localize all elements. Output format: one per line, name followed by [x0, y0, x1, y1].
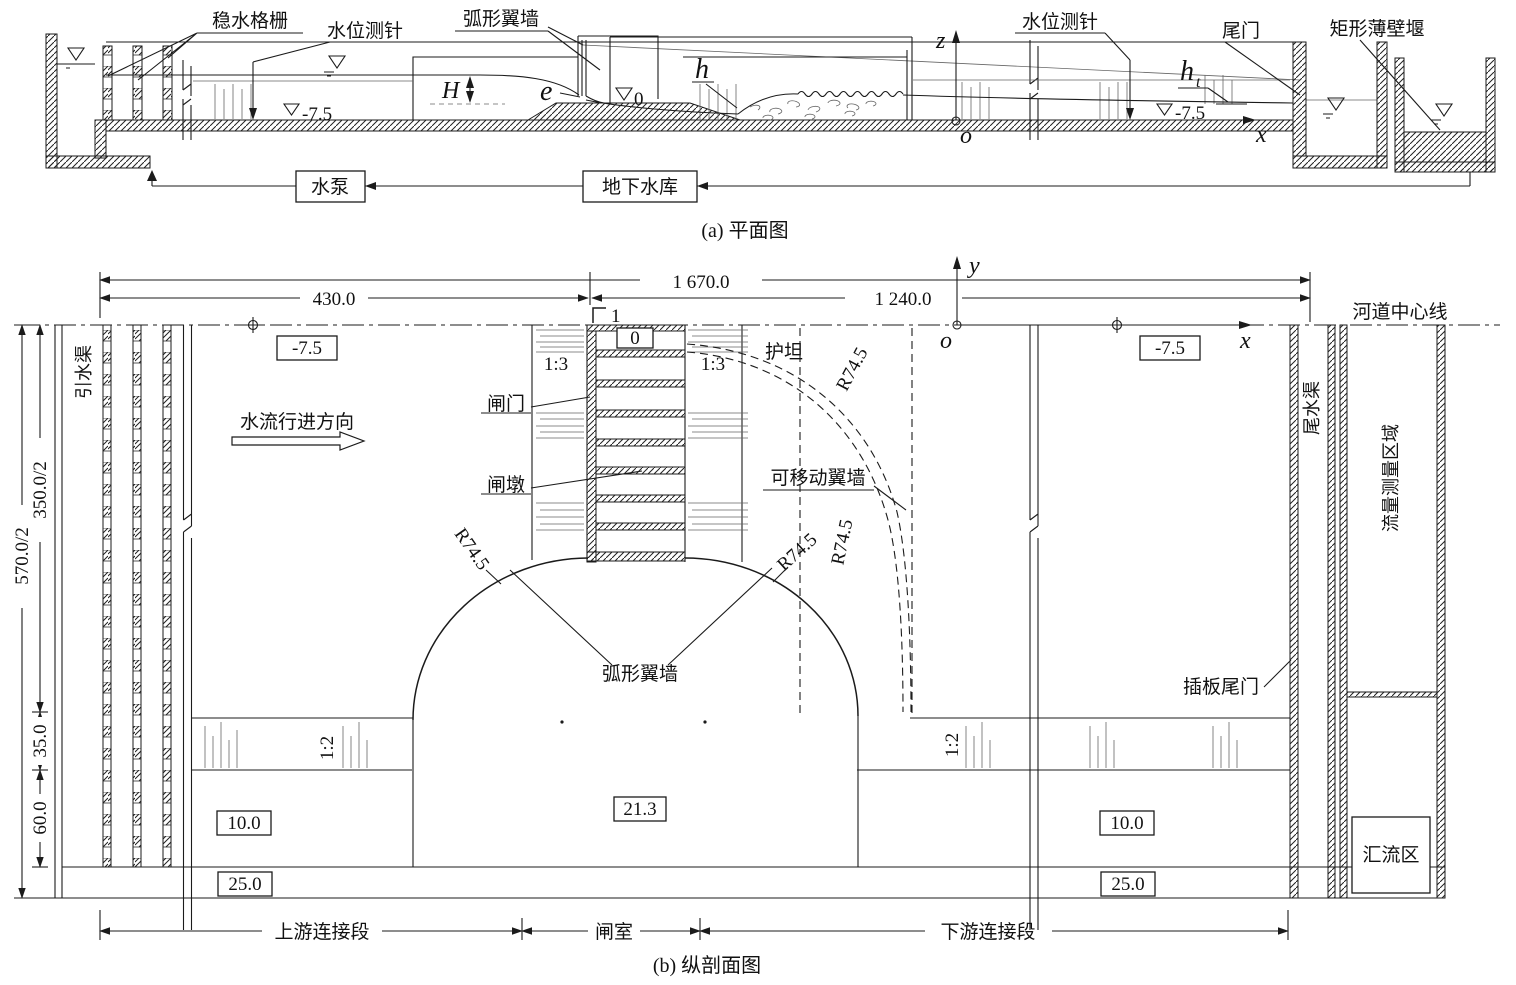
level-zero: 0 — [634, 89, 644, 110]
radius-label-4: R74.5 — [827, 517, 857, 566]
H-label: H — [441, 78, 461, 104]
reservoir-label: 地下水库 — [602, 176, 678, 198]
svg-text:尾门: 尾门 — [1222, 20, 1260, 42]
svg-text:矩形薄壁堰: 矩形薄壁堰 — [1329, 18, 1424, 40]
plan-view: 水泵 地下水库 0 -7.5 -7.5 z o x — [46, 8, 1495, 242]
svg-text:闸门: 闸门 — [487, 393, 525, 415]
left-channel-wall — [55, 325, 62, 898]
centerline-label: 河道中心线 — [1352, 301, 1447, 323]
flume-floor — [106, 120, 1293, 131]
section-mark: 1 — [593, 306, 621, 327]
svg-text:稳水格栅: 稳水格栅 — [212, 10, 288, 32]
diversion-label: 引水渠 — [74, 345, 94, 399]
tail-gate-wall — [1293, 42, 1306, 156]
svg-text:1:2: 1:2 — [942, 733, 963, 757]
svg-text:尾水渠: 尾水渠 — [1302, 381, 1322, 435]
pump-label: 水泵 — [311, 176, 349, 198]
slope-13-left: 1:3 — [544, 354, 568, 375]
segment-gate: 闸室 — [595, 921, 633, 943]
dim-half-main: 350.0/2 — [30, 325, 51, 712]
tailrace-label: 尾水渠 — [1302, 381, 1322, 435]
break-line-right — [1030, 325, 1038, 930]
flow-direction: 水流行进方向 — [232, 411, 364, 450]
svg-text:可移动翼墙: 可移动翼墙 — [770, 467, 865, 489]
caption-plan: (a) 平面图 — [701, 220, 788, 242]
hydraulic-model-drawing: 水泵 地下水库 0 -7.5 -7.5 z o x — [0, 0, 1516, 985]
segment-dimension: 上游连接段 闸室 下游连接段 — [100, 910, 1288, 943]
break-line-left — [184, 325, 192, 930]
h-label: h — [695, 54, 709, 85]
apron-label: 护坦 — [765, 341, 803, 363]
svg-text:水位测针: 水位测针 — [327, 20, 403, 42]
plug-gate-label: 插板尾门 — [1183, 660, 1291, 698]
level-left: -7.5 — [302, 104, 332, 125]
svg-text:R74.5: R74.5 — [832, 344, 872, 394]
dim-berm: 35.0 — [30, 712, 51, 770]
slope-12-left: 1:2 — [317, 736, 338, 760]
svg-text:350.0/2: 350.0/2 — [30, 461, 51, 519]
radius-leader-1 — [486, 570, 501, 584]
caption-section: (b) 纵剖面图 — [653, 954, 761, 977]
berm-lines — [192, 718, 1290, 770]
slope-13-right: 1:3 — [701, 354, 725, 375]
svg-text:60.0: 60.0 — [30, 801, 51, 834]
stilling-grille-plan — [103, 325, 171, 867]
svg-text:1:2: 1:2 — [317, 736, 338, 760]
svg-text:闸墩: 闸墩 — [487, 474, 525, 496]
elev-25-right: 25.0 — [1101, 872, 1155, 896]
hydraulic-jump-rollers — [750, 100, 876, 120]
segment-downstream: 下游连接段 — [940, 921, 1035, 943]
elev-10-right: 10.0 — [1100, 811, 1154, 835]
x-axis-label-plan: x — [1255, 122, 1267, 148]
svg-text:25.0: 25.0 — [1111, 874, 1144, 895]
svg-text:水流行进方向: 水流行进方向 — [240, 411, 354, 433]
elev-10-left: 10.0 — [217, 811, 271, 835]
radius-label-3: R74.5 — [832, 344, 872, 394]
movable-wall-label: 可移动翼墙 — [763, 467, 906, 510]
svg-text:430.0: 430.0 — [313, 289, 356, 310]
svg-text:1 670.0: 1 670.0 — [673, 272, 730, 293]
svg-text:570.0/2: 570.0/2 — [12, 527, 33, 585]
svg-text:汇流区: 汇流区 — [1362, 844, 1419, 866]
radius-label-1: R74.5 — [450, 524, 494, 574]
tail-gate-label: 尾门 — [1222, 20, 1300, 95]
tail-tank — [1293, 42, 1387, 168]
y-axis — [953, 256, 961, 329]
elev-21-3: 21.3 — [614, 797, 666, 821]
e-label: e — [540, 76, 552, 107]
svg-text:10.0: 10.0 — [1110, 813, 1143, 834]
x-axis-label-section: x — [1239, 328, 1251, 354]
gate-slot-line — [587, 331, 596, 562]
svg-text:10.0: 10.0 — [227, 813, 260, 834]
dim-lower: 60.0 — [30, 770, 51, 867]
movable-wing-wall-arc — [687, 344, 911, 712]
svg-text:R74.5: R74.5 — [773, 529, 821, 575]
svg-text:插板尾门: 插板尾门 — [1183, 676, 1259, 698]
segment-upstream: 上游连接段 — [274, 921, 369, 943]
slope-12-right: 1:2 — [942, 733, 963, 757]
level-right: -7.5 — [1175, 103, 1205, 124]
svg-text:弧形翼墙: 弧形翼墙 — [463, 8, 539, 30]
water-level-icon — [63, 48, 1452, 124]
origin-label-section: o — [940, 328, 952, 354]
svg-text:1 240.0: 1 240.0 — [875, 289, 932, 310]
elev-left-box: -7.5 — [277, 336, 337, 360]
h-leader — [692, 82, 737, 108]
svg-text:-7.5: -7.5 — [292, 338, 322, 359]
svg-text:21.3: 21.3 — [623, 799, 656, 820]
sill-elev-box: 0 — [617, 328, 653, 349]
elev-25-left: 25.0 — [218, 872, 272, 896]
gate-chamber — [587, 325, 685, 562]
measure-area-label: 流量测量区域 — [1381, 424, 1401, 532]
confluence-box: 汇流区 — [1352, 817, 1430, 893]
y-axis-label: y — [967, 253, 980, 279]
z-axis — [952, 30, 960, 125]
svg-text:25.0: 25.0 — [228, 874, 261, 895]
origin-label-plan: o — [960, 123, 972, 149]
svg-text:35.0: 35.0 — [30, 724, 51, 757]
svg-text:水位测针: 水位测针 — [1022, 11, 1098, 33]
svg-text:h: h — [1180, 56, 1194, 87]
x-axis-section — [957, 321, 1252, 329]
z-axis-label: z — [935, 28, 946, 54]
elev-right-box: -7.5 — [1140, 336, 1200, 360]
svg-text:弧形翼墙: 弧形翼墙 — [602, 663, 678, 685]
svg-text:流量测量区域: 流量测量区域 — [1381, 424, 1401, 532]
gauge-right-label: 水位测针 — [1015, 11, 1130, 60]
svg-text:1: 1 — [611, 306, 621, 327]
radius-label-2: R74.5 — [773, 529, 821, 575]
svg-text:引水渠: 引水渠 — [74, 345, 94, 399]
arc-wall-label-section: 弧形翼墙 — [510, 568, 772, 685]
stilling-grille — [103, 46, 172, 120]
dim-total: 1 670.0 — [100, 272, 1310, 322]
svg-text:0: 0 — [630, 328, 640, 349]
gauge-rail — [193, 80, 1290, 81]
gate-label: 闸门 — [481, 393, 590, 415]
needle-arrow-left — [249, 62, 257, 120]
svg-text:R74.5: R74.5 — [827, 517, 857, 566]
svg-text:-7.5: -7.5 — [1155, 338, 1185, 359]
pier-label: 闸墩 — [481, 471, 642, 496]
section-view: 1 670.0 430.0 1 240.0 河道中心线 y o x — [12, 253, 1500, 977]
svg-text:R74.5: R74.5 — [450, 524, 494, 574]
sluice-gate-profile — [578, 36, 658, 103]
